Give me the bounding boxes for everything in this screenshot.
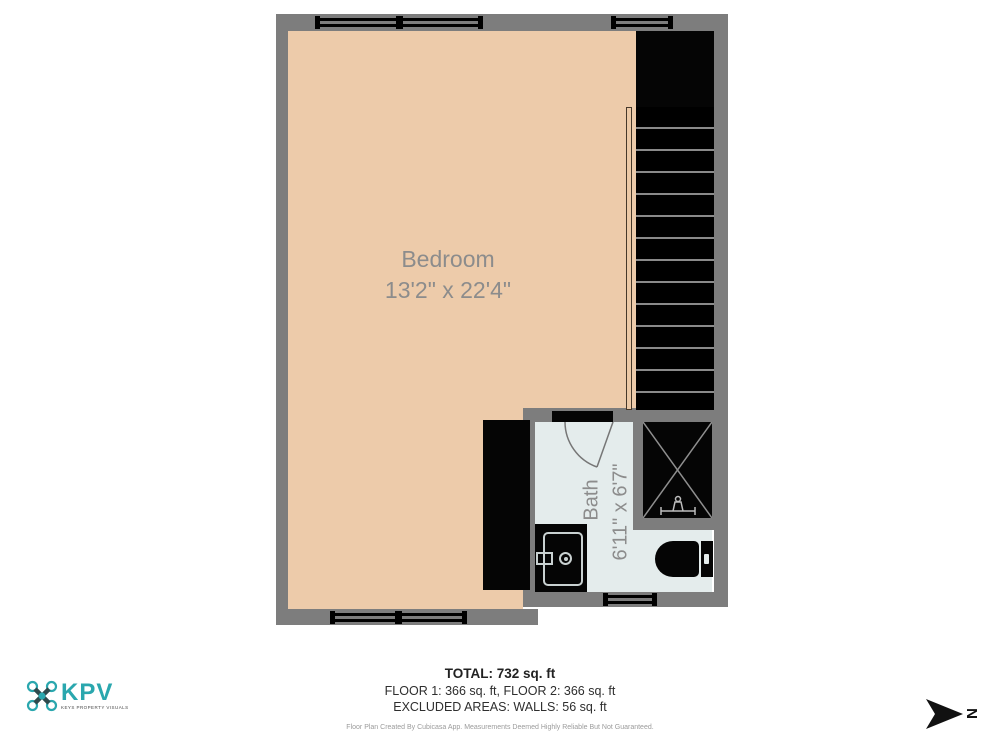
bath-dimensions: 6'11" x 6'7"	[610, 463, 633, 560]
excluded-areas: EXCLUDED AREAS: WALLS: 56 sq. ft	[0, 700, 1000, 714]
compass-north-label: N	[963, 708, 980, 719]
floor-plan-page: Bedroom 13'2" x 22'4" Bath 6'11" x 6'7" …	[0, 0, 1000, 750]
window-mullion	[395, 611, 402, 624]
bedroom-floor	[288, 31, 636, 413]
staircase	[636, 107, 714, 410]
total-area: TOTAL: 732 sq. ft	[0, 666, 1000, 681]
compass: N	[926, 698, 986, 734]
brand-name: KPV	[61, 682, 129, 704]
wall-east	[714, 14, 728, 607]
area-summary: TOTAL: 732 sq. ft FLOOR 1: 366 sq. ft, F…	[0, 666, 1000, 714]
bathroom-sink	[535, 524, 587, 592]
toilet-flush-icon	[704, 554, 709, 564]
wall-west	[276, 14, 288, 625]
north-arrow-icon	[926, 698, 966, 732]
disclaimer-text: Floor Plan Created By Cubicasa App. Meas…	[0, 724, 1000, 731]
sink-faucet-icon	[536, 552, 553, 565]
bedroom-label: Bedroom 13'2" x 22'4"	[308, 244, 588, 306]
sink-drain-icon	[559, 552, 572, 565]
window-north-double	[315, 16, 483, 29]
shower-cross-icon	[643, 422, 712, 518]
stair-landing	[636, 31, 714, 107]
window-mullion	[396, 16, 403, 29]
wardrobe-block	[483, 420, 530, 590]
window-bath	[603, 593, 657, 606]
kpv-logo: KPV KEYS PROPERTY VISUALS	[26, 680, 129, 712]
bedroom-dimensions: 13'2" x 22'4"	[308, 275, 588, 306]
floor-areas: FLOOR 1: 366 sq. ft, FLOOR 2: 366 sq. ft	[0, 684, 1000, 698]
shower-valve-icon	[661, 497, 695, 516]
shower	[643, 422, 712, 518]
bath-door	[552, 411, 613, 422]
bedroom-name: Bedroom	[308, 244, 588, 275]
bath-name: Bath	[581, 479, 604, 520]
stair-door-leaf	[626, 107, 632, 410]
drone-icon	[26, 680, 58, 712]
toilet-bowl	[655, 541, 699, 577]
window-south-double	[330, 611, 467, 624]
window-north-single	[611, 16, 673, 29]
brand-tagline: KEYS PROPERTY VISUALS	[61, 705, 129, 710]
